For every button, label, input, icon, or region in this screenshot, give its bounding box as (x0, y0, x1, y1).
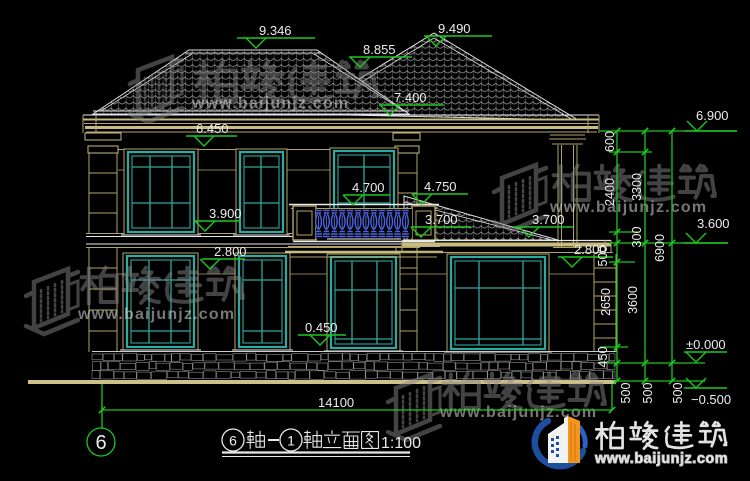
svg-text:4.700: 4.700 (352, 180, 385, 195)
svg-text:7.400: 7.400 (394, 90, 427, 105)
svg-text:6.900: 6.900 (696, 108, 729, 123)
svg-text:500: 500 (619, 383, 633, 404)
svg-text:3.900: 3.900 (209, 206, 242, 221)
svg-text:6: 6 (95, 432, 106, 454)
svg-text:2.800: 2.800 (214, 244, 247, 259)
svg-text:www.baijunjz.com: www.baijunjz.com (594, 451, 728, 467)
svg-text:9.346: 9.346 (259, 23, 292, 38)
svg-text:600: 600 (603, 131, 617, 152)
svg-text:www.baijunjz.com: www.baijunjz.com (77, 306, 235, 323)
svg-text:2650: 2650 (599, 288, 613, 316)
svg-text:500: 500 (641, 383, 655, 404)
svg-text:2400: 2400 (603, 178, 617, 206)
svg-text:3.600: 3.600 (697, 216, 730, 231)
svg-text:3.700: 3.700 (532, 212, 565, 227)
svg-text:3600: 3600 (626, 286, 640, 314)
svg-text:−0.500: −0.500 (691, 392, 731, 407)
svg-text:8.855: 8.855 (363, 42, 396, 57)
svg-text:www.baijunjz.com: www.baijunjz.com (549, 199, 707, 216)
svg-text:500: 500 (596, 246, 610, 267)
svg-text:4.750: 4.750 (424, 179, 457, 194)
svg-text:1: 1 (287, 433, 295, 449)
svg-text:500: 500 (671, 383, 685, 404)
svg-text:1:100: 1:100 (381, 435, 421, 452)
svg-text:9.490: 9.490 (438, 21, 471, 36)
svg-text:0.450: 0.450 (305, 320, 338, 335)
svg-text:14100: 14100 (318, 395, 354, 410)
svg-text:300: 300 (630, 227, 644, 248)
svg-text:±0.000: ±0.000 (686, 337, 726, 352)
svg-text:6: 6 (229, 433, 237, 449)
svg-text:www.baijunjz.com: www.baijunjz.com (191, 95, 349, 112)
svg-text:3.700: 3.700 (425, 212, 458, 227)
svg-text:6.450: 6.450 (196, 121, 229, 136)
svg-text:6900: 6900 (653, 234, 667, 262)
svg-text:3300: 3300 (630, 173, 644, 201)
svg-text:450: 450 (596, 347, 610, 368)
